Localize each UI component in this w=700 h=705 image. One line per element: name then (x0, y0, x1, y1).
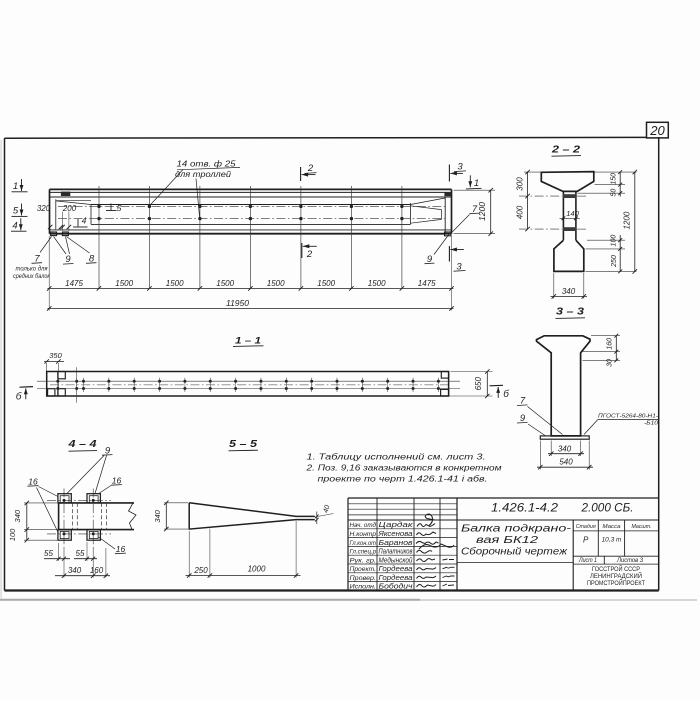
svg-text:2.000 СБ.: 2.000 СБ. (580, 503, 633, 515)
svg-text:1.426.1-4.2: 1.426.1-4.2 (491, 503, 559, 515)
svg-text:1: 1 (474, 178, 479, 189)
svg-text:Гордеева: Гордеева (379, 565, 413, 573)
svg-text:Сборочный чертеж: Сборочный чертеж (461, 547, 568, 558)
svg-text:Яксенова: Яксенова (377, 531, 412, 538)
svg-text:150: 150 (610, 173, 617, 185)
svg-text:5: 5 (13, 206, 19, 217)
svg-text:250: 250 (611, 255, 618, 268)
svg-text:ЛЕНИНГРАДСКИЙ: ЛЕНИНГРАДСКИЙ (590, 572, 642, 580)
svg-text:400: 400 (515, 205, 524, 219)
svg-text:Нач. отд: Нач. отд (350, 523, 377, 529)
svg-text:2: 2 (306, 249, 313, 260)
svg-text:Гордеева: Гордеева (379, 574, 413, 582)
svg-text:проекте по черт 1.426.1-41 і а: проекте по черт 1.426.1-41 і абв. (318, 474, 488, 484)
svg-text:4 – 4: 4 – 4 (67, 439, 97, 450)
svg-text:1. Таблицу исполнений см. лис: 1. Таблицу исполнений см. лист 3. (307, 452, 486, 462)
svg-text:Палатников: Палатников (379, 549, 413, 556)
svg-text:20: 20 (649, 123, 665, 138)
svg-text:Лист 1: Лист 1 (578, 557, 597, 564)
svg-text:Бободич: Бободич (379, 583, 413, 591)
svg-text:16: 16 (28, 476, 38, 486)
svg-text:Исполн.: Исполн. (350, 585, 377, 591)
svg-text:1200: 1200 (477, 202, 487, 221)
svg-text:650: 650 (474, 376, 483, 390)
svg-text:для троллей: для троллей (175, 170, 232, 179)
svg-text:Стадия: Стадия (576, 524, 596, 530)
svg-text:1200: 1200 (623, 211, 632, 229)
svg-text:2 – 2: 2 – 2 (551, 144, 581, 155)
svg-text:ПГОСТ-5264-80-Н1-: ПГОСТ-5264-80-Н1- (598, 414, 658, 420)
svg-text:Масса: Масса (603, 524, 621, 530)
svg-text:100: 100 (8, 528, 17, 541)
svg-text:Медынской: Медынской (379, 556, 413, 564)
svg-text:вая БК12: вая БК12 (476, 535, 539, 546)
svg-text:300: 300 (516, 177, 525, 191)
svg-text:100: 100 (611, 235, 618, 247)
svg-text:Масшт.: Масшт. (632, 524, 652, 530)
svg-text:средних балок: средних балок (13, 272, 51, 280)
svg-text:250: 250 (193, 566, 208, 575)
svg-text:340: 340 (68, 566, 82, 575)
svg-text:30: 30 (606, 359, 613, 367)
svg-text:200: 200 (62, 204, 77, 213)
svg-text:1475: 1475 (418, 279, 436, 288)
svg-text:1500: 1500 (216, 279, 234, 288)
svg-text:2: 2 (307, 163, 314, 174)
svg-text:Провер.: Провер. (350, 576, 377, 582)
svg-text:50: 50 (610, 189, 617, 197)
svg-text:Проект.: Проект. (350, 567, 377, 573)
svg-text:340: 340 (562, 287, 576, 296)
svg-text:Цардак: Цардак (379, 521, 414, 529)
svg-text:2. Поз. 9,16 заказываются в ко: 2. Поз. 9,16 заказываются в конкретном (305, 463, 501, 473)
svg-text:340: 340 (558, 444, 572, 453)
svg-text:б: б (16, 390, 22, 402)
svg-text:-Б10: -Б10 (644, 420, 659, 426)
svg-text:11950: 11950 (226, 298, 249, 308)
svg-text:340: 340 (153, 509, 162, 522)
svg-text:5: 5 (117, 203, 122, 213)
svg-text:Баранов: Баранов (379, 540, 413, 547)
svg-text:320: 320 (37, 204, 51, 213)
svg-text:1500: 1500 (115, 279, 133, 288)
svg-text:1: 1 (13, 181, 18, 192)
svg-text:Листов 3: Листов 3 (616, 557, 643, 564)
svg-text:55: 55 (44, 549, 53, 558)
svg-text:14 отв. ф 25: 14 отв. ф 25 (177, 160, 237, 169)
svg-text:5 – 5: 5 – 5 (229, 439, 258, 450)
svg-text:Рук. гр.: Рук. гр. (350, 558, 377, 564)
svg-text:1475: 1475 (65, 279, 83, 288)
svg-text:160: 160 (90, 566, 104, 575)
svg-text:350: 350 (49, 351, 62, 360)
svg-text:ПРОМСТРОЙПРОЕКТ: ПРОМСТРОЙПРОЕКТ (587, 579, 645, 587)
svg-text:1 – 1: 1 – 1 (235, 336, 261, 347)
svg-text:1500: 1500 (368, 279, 386, 288)
svg-text:Балка подкрано-: Балка подкрано- (461, 524, 572, 535)
svg-text:540: 540 (559, 458, 573, 467)
svg-text:Гл.кон.от: Гл.кон.от (350, 541, 377, 547)
svg-text:55: 55 (76, 549, 85, 558)
svg-text:10,3 т: 10,3 т (602, 537, 622, 544)
svg-text:16: 16 (116, 544, 126, 554)
svg-text:Н.контр: Н.контр (350, 532, 377, 538)
svg-text:Р: Р (583, 536, 589, 545)
svg-text:4: 4 (12, 221, 17, 232)
svg-text:1500: 1500 (267, 279, 285, 288)
svg-text:340: 340 (13, 509, 22, 522)
svg-text:1500: 1500 (317, 279, 335, 288)
svg-text:160: 160 (606, 338, 613, 350)
svg-text:16: 16 (112, 475, 122, 485)
svg-text:3 – 3: 3 – 3 (556, 306, 585, 317)
svg-text:1500: 1500 (166, 279, 184, 288)
svg-text:только для: только для (16, 265, 49, 273)
svg-text:4: 4 (82, 216, 87, 226)
svg-text:ГОССТРОЙ СССР: ГОССТРОЙ СССР (592, 565, 640, 573)
svg-text:1000: 1000 (248, 565, 266, 574)
svg-text:б: б (503, 388, 509, 400)
svg-text:40: 40 (323, 504, 332, 513)
svg-text:Гл.спец.р: Гл.спец.р (350, 550, 377, 556)
